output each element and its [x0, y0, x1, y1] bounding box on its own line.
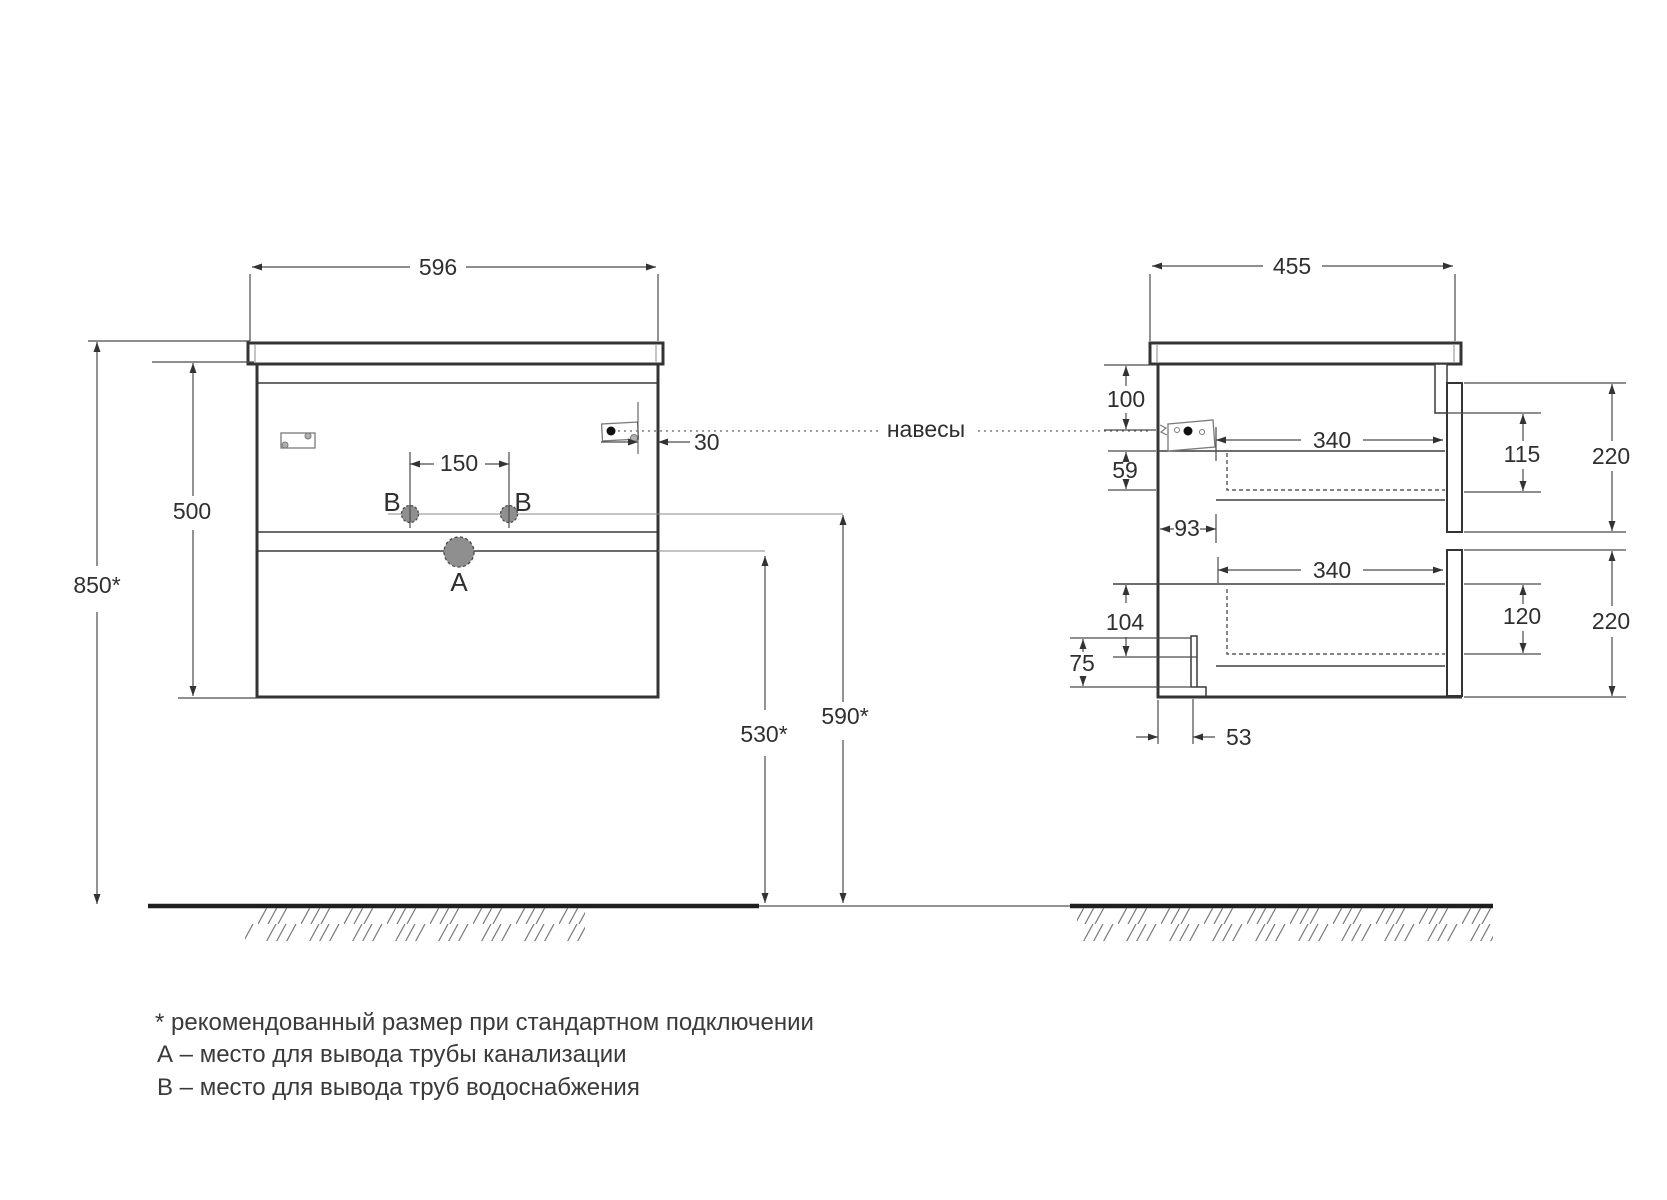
- upper-drawer-front: [1447, 383, 1462, 532]
- dim-upper-inner-height-value: 115: [1504, 441, 1541, 467]
- left-hanger-plate-icon: [281, 433, 315, 448]
- dim-hanger-drop-value: 100: [1107, 386, 1145, 412]
- dim-mount-height-850: [88, 341, 250, 904]
- supply-label-left: B: [383, 487, 400, 517]
- floor: [148, 906, 1493, 941]
- dim-carcass-height-value: 500: [173, 498, 211, 524]
- dim-upper-front-height-value: 220: [1592, 443, 1630, 469]
- side-carcass-outline: [1158, 364, 1462, 697]
- lower-drawer-box-dashed: [1227, 589, 1445, 654]
- plinth-recess: [1191, 636, 1206, 697]
- lower-drawer-front: [1447, 550, 1462, 696]
- dim-holes-spacing-value: 150: [440, 450, 478, 476]
- dim-lower-front-height-value: 220: [1592, 608, 1630, 634]
- dim-drain-height-value: 530*: [740, 721, 787, 747]
- upper-drawer-box-dashed: [1227, 453, 1445, 490]
- footnote-recommended-size: * рекомендованный размер при стандартном…: [155, 1009, 814, 1036]
- footnote-supply: В – место для вывода труб водоснабжения: [157, 1074, 640, 1101]
- hangers-label: навесы: [887, 416, 965, 442]
- side-interior-lines: [1113, 451, 1445, 666]
- dim-plinth-height-value: 75: [1069, 650, 1095, 676]
- dim-lower-drawer-depth-value: 340: [1313, 557, 1351, 583]
- side-countertop: [1150, 343, 1461, 364]
- dim-upper-drawer-depth-value: 340: [1313, 427, 1351, 453]
- technical-drawing-page: B B A 596 850* 500: [0, 0, 1667, 1200]
- side-back-strip: [1435, 364, 1447, 413]
- footnotes: * рекомендованный размер при стандартном…: [155, 1009, 814, 1101]
- front-carcass-outline: [257, 364, 658, 697]
- drain-label: A: [450, 567, 468, 597]
- footnote-drain: А – место для вывода трубы канализации: [157, 1041, 627, 1068]
- dim-mount-height-value: 850*: [73, 572, 120, 598]
- right-hanger-plate-icon: [602, 402, 639, 454]
- dim-bottom-clearance-value: 104: [1106, 609, 1145, 635]
- dim-plinth-depth-53: [1136, 699, 1215, 744]
- front-view: B B A 596 850* 500: [73, 254, 868, 904]
- side-hanger-bracket-icon: [1160, 420, 1215, 451]
- dim-hanger-offset-value: 30: [694, 429, 720, 455]
- dim-width-value: 596: [419, 254, 457, 280]
- dim-carcass-height-500: [152, 362, 258, 698]
- floor-hatching-side: [1077, 908, 1493, 941]
- vanity-dimension-drawing: B B A 596 850* 500: [0, 0, 1667, 1200]
- front-countertop: [248, 343, 663, 364]
- side-hanger-hole-dot: [1184, 427, 1193, 436]
- supply-label-right: B: [514, 487, 531, 517]
- right-hanger-hole-dot: [607, 427, 616, 436]
- dim-lower-inner-height-value: 120: [1503, 603, 1541, 629]
- dim-plinth-depth-value: 53: [1226, 724, 1252, 750]
- dim-supply-height-value: 590*: [821, 703, 868, 729]
- dim-back-clearance-value: 93: [1174, 515, 1200, 541]
- drain-hole: [444, 537, 474, 567]
- dim-hanger-gap-value: 59: [1112, 457, 1138, 483]
- floor-hatching-front: [245, 908, 585, 941]
- side-view: 455 100 59 93 340: [1069, 253, 1630, 750]
- dim-depth-value: 455: [1273, 253, 1311, 279]
